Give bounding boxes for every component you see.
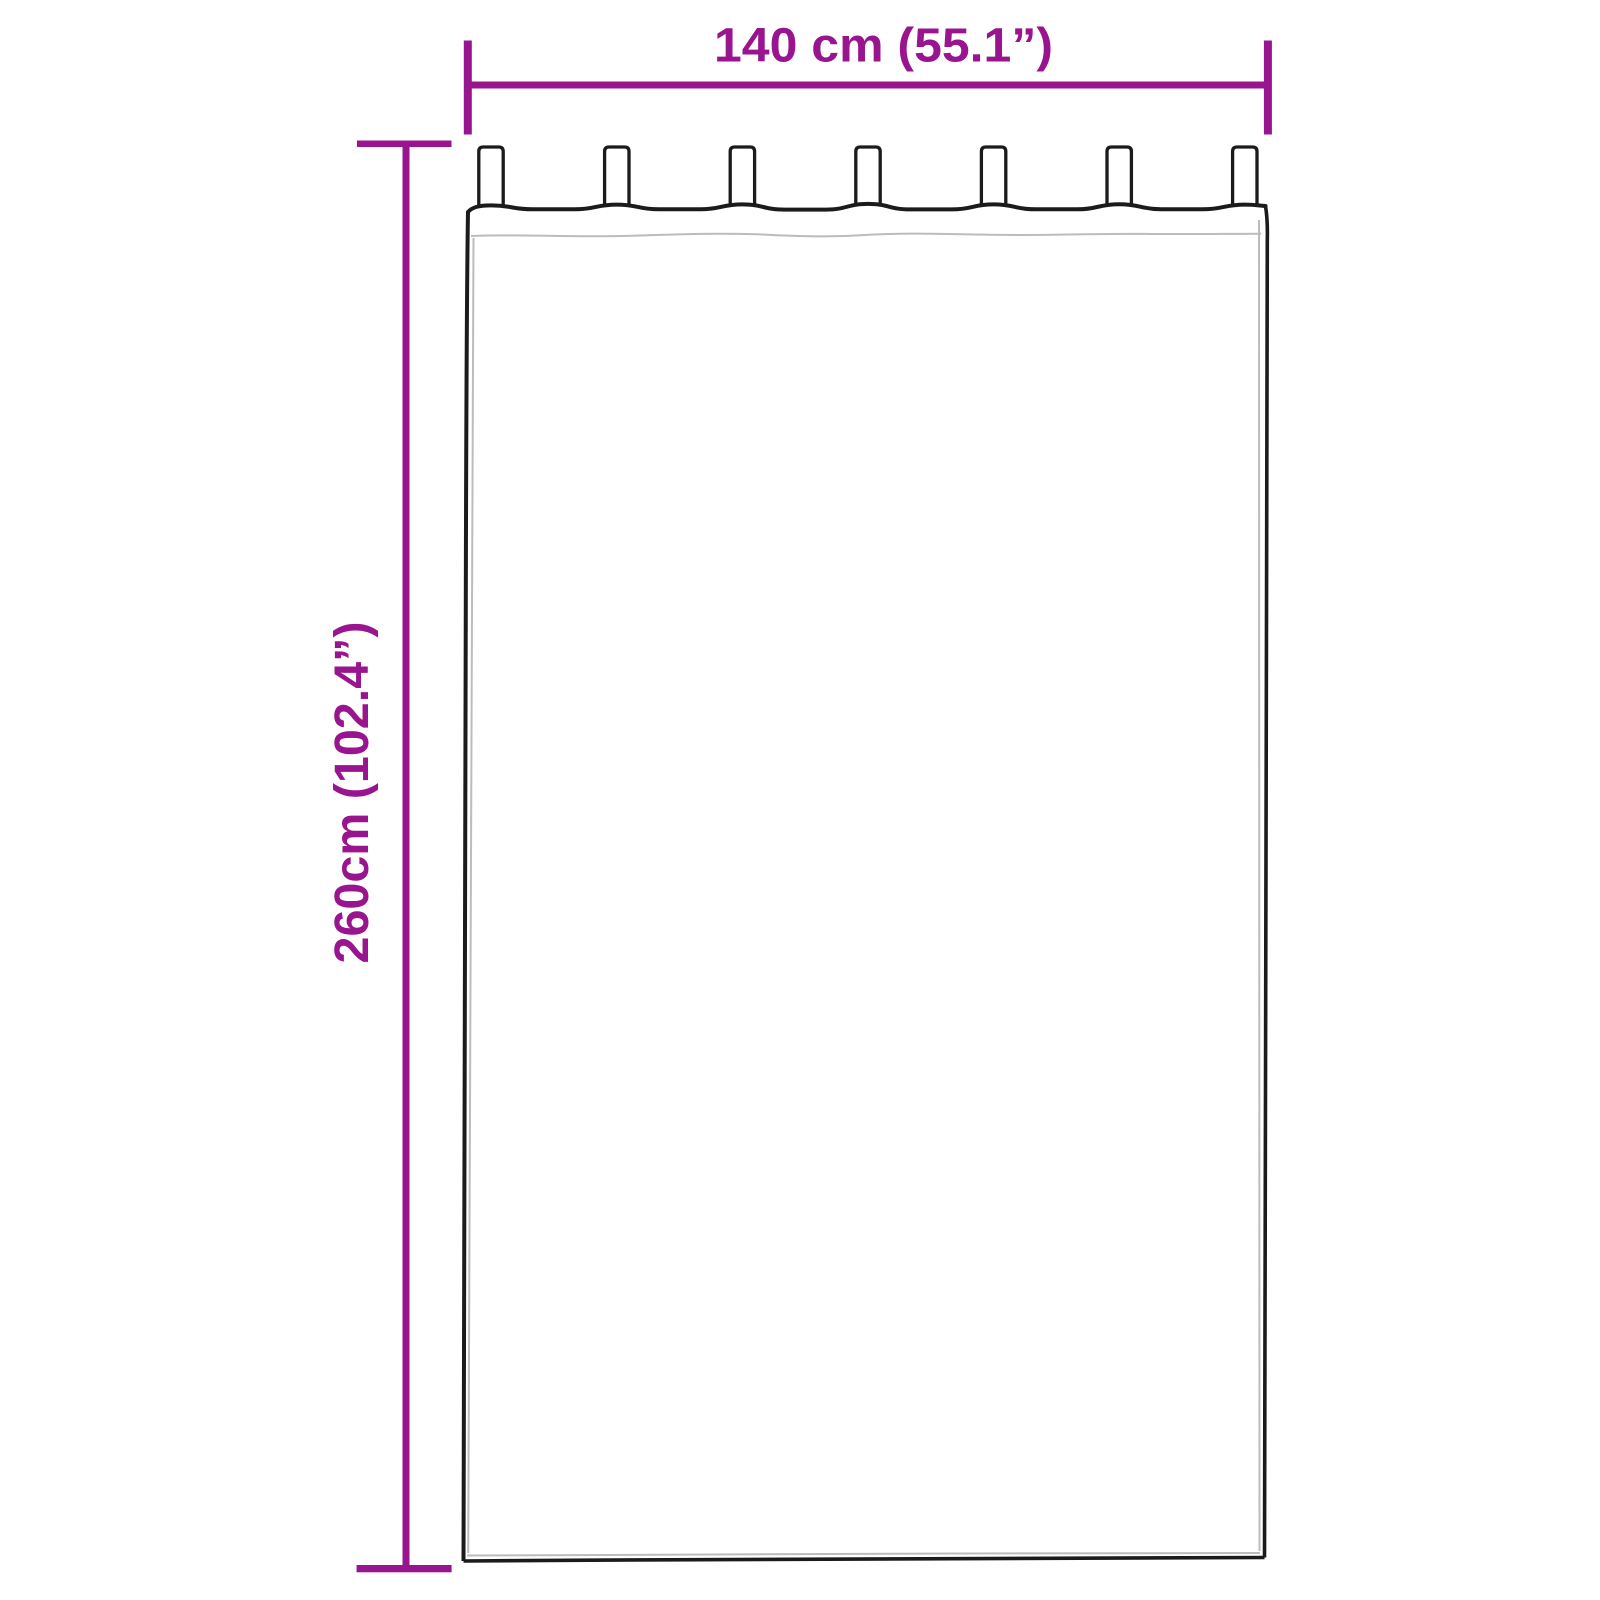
svg-text:260cm (102.4”): 260cm (102.4”) [326,622,379,964]
svg-text:140 cm (55.1”): 140 cm (55.1”) [714,20,1053,73]
